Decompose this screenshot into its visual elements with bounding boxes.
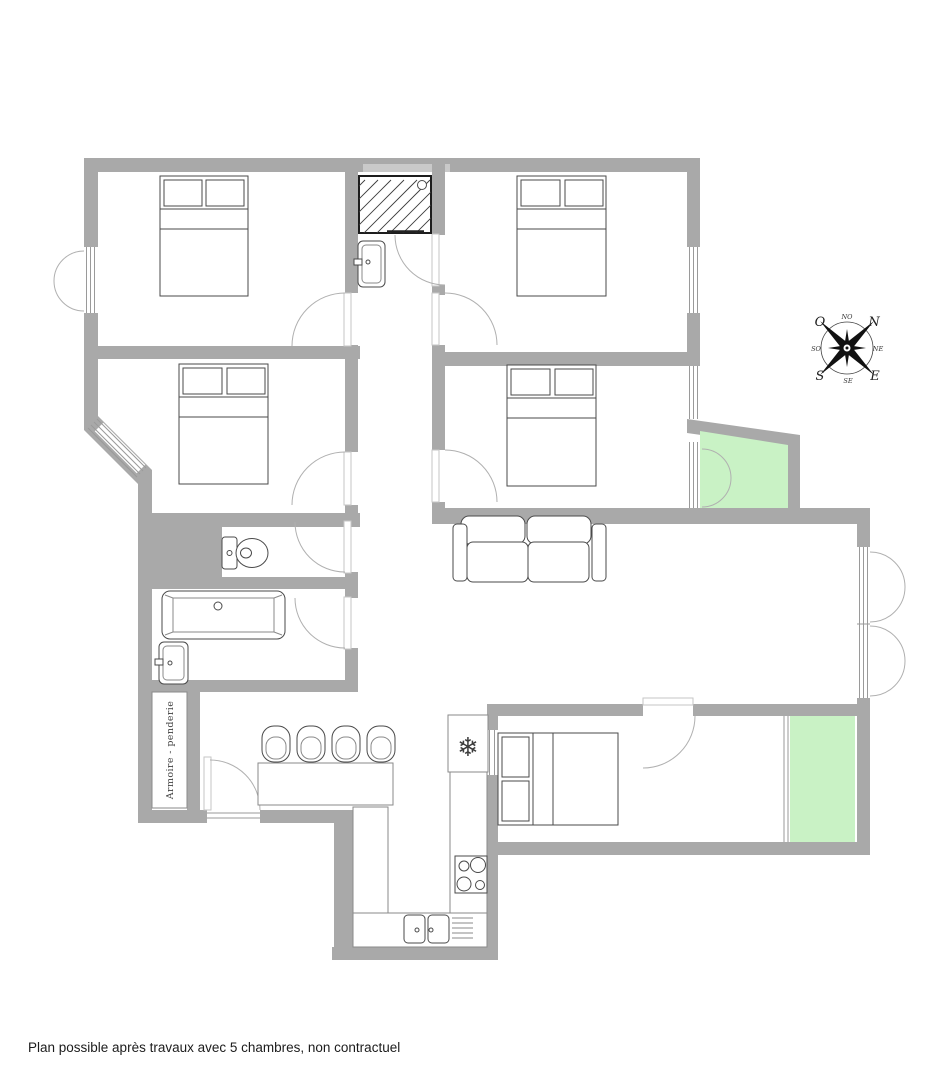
chair [262, 726, 290, 762]
window-bedroom-mid-right [687, 366, 700, 419]
shower-drain [418, 181, 427, 190]
door-bedroom-top-right [432, 293, 497, 345]
kitchen-counter-left [353, 807, 388, 913]
dining-chairs [262, 726, 395, 762]
toilet [222, 537, 268, 569]
bed-bedroom-top-right [517, 176, 606, 296]
bed-bedroom-bottom-right [498, 733, 618, 825]
door-wc [295, 521, 351, 573]
window-balcony-bottom [782, 716, 790, 842]
chair [332, 726, 360, 762]
dining-table [258, 763, 393, 805]
floor-plan-page: Armoire - penderie [0, 0, 942, 1080]
door-bedroom-top-left [292, 293, 351, 346]
sofa [453, 516, 606, 582]
chair [367, 726, 395, 762]
closet-label: Armoire - penderie [165, 701, 176, 801]
bathtub [162, 591, 285, 639]
compass-nw-label: NO [840, 313, 853, 321]
pass-through-kitchen [487, 730, 498, 775]
compass-west-label: O [815, 315, 826, 330]
washbasin-bathroom [155, 642, 188, 684]
fridge: ❄ [448, 715, 488, 772]
door-bedroom-mid-left [292, 452, 351, 505]
compass-rose: O N S E NO NE SE SO [811, 313, 883, 385]
compass-north-label: N [867, 315, 880, 330]
snowflake-icon: ❄ [457, 733, 479, 763]
compass-se-label: SE [843, 377, 852, 385]
floor-plan: Armoire - penderie [0, 0, 942, 1080]
bed-bedroom-mid-left [179, 364, 268, 484]
window-bedroom-top-left [54, 247, 98, 313]
stove [455, 856, 487, 893]
bed-bedroom-mid-right [507, 365, 596, 486]
chair [297, 726, 325, 762]
bed-bedroom-top-left [160, 176, 248, 296]
door-entry [204, 757, 260, 823]
compass-south-label: S [816, 369, 825, 384]
door-bedroom-mid-right [432, 450, 497, 502]
compass-ne-label: NE [872, 345, 884, 353]
door-shower-room [395, 234, 445, 286]
window-bedroom-top-right [687, 247, 700, 313]
door-bathroom [295, 597, 351, 649]
window-living-room [857, 547, 905, 698]
plan-caption: Plan possible après travaux avec 5 chamb… [28, 1040, 400, 1055]
balcony-bottom [790, 716, 855, 842]
closet: Armoire - penderie [152, 692, 187, 808]
door-bedroom-bottom-right [643, 698, 695, 768]
compass-sw-label: SO [811, 345, 821, 353]
washbasin-shower-room [354, 241, 385, 287]
compass-east-label: E [869, 369, 880, 384]
